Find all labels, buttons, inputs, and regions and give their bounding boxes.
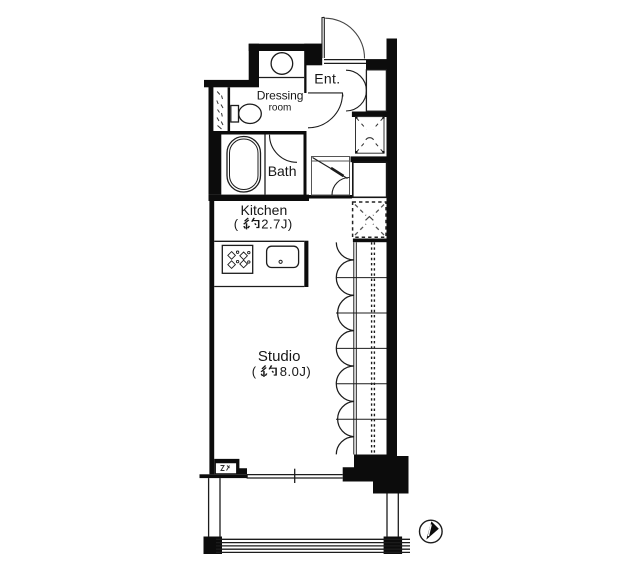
svg-text:8.0J): 8.0J) — [280, 364, 311, 379]
svg-text:(: ( — [234, 217, 239, 232]
svg-text:Studio: Studio — [258, 348, 301, 365]
svg-text:2.7J): 2.7J) — [261, 217, 292, 232]
svg-text:(: ( — [252, 364, 257, 379]
svg-text:Bath: Bath — [268, 163, 297, 179]
svg-text:Dressing: Dressing — [257, 89, 304, 103]
svg-text:Ent.: Ent. — [314, 71, 340, 87]
svg-text:room: room — [269, 102, 292, 113]
